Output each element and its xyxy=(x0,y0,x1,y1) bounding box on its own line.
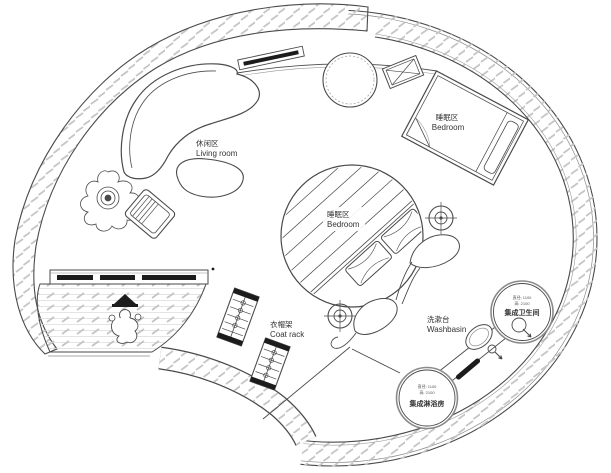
shower-pod xyxy=(397,368,458,429)
window-bar xyxy=(100,275,135,280)
label-coat-rack-en: Coat rack xyxy=(270,330,305,339)
label-bedroom-upper-zh: 睡眠区 xyxy=(436,113,459,122)
label-bedroom-center-en: Bedroom xyxy=(327,220,360,229)
column-dot xyxy=(212,268,215,271)
floor-plan-canvas: 休闲区 Living room 睡眠区 Bedroom 睡眠区 Bedroom … xyxy=(0,0,611,473)
label-bedroom-upper-en: Bedroom xyxy=(432,123,465,132)
floor-plan-drawing: 休闲区 Living room 睡眠区 Bedroom 睡眠区 Bedroom … xyxy=(0,0,611,473)
label-coat-rack-zh: 衣帽架 xyxy=(270,319,293,329)
toilet-pod-spec1: 直径: 1100 xyxy=(513,294,533,300)
shower-pod-spec2: 高: 2100 xyxy=(419,389,435,395)
round-table xyxy=(323,53,377,107)
label-bedroom-center-zh: 睡眠区 xyxy=(327,210,350,219)
label-washbasin-en: Washbasin xyxy=(427,325,466,334)
toilet-pod-name: 集成卫生间 xyxy=(504,308,540,317)
shower-pod-name: 集成淋浴房 xyxy=(409,399,445,408)
deck-window-wall xyxy=(50,270,208,284)
window-bar xyxy=(142,275,196,280)
label-living-room-zh: 休闲区 xyxy=(196,138,219,148)
window-bar xyxy=(57,275,93,280)
shower-pod-spec1: 直径: 1100 xyxy=(418,383,438,389)
label-washbasin-zh: 洗漱台 xyxy=(427,314,450,324)
toilet-pod-spec2: 高: 2100 xyxy=(514,300,530,306)
label-living-room-en: Living room xyxy=(196,149,238,158)
